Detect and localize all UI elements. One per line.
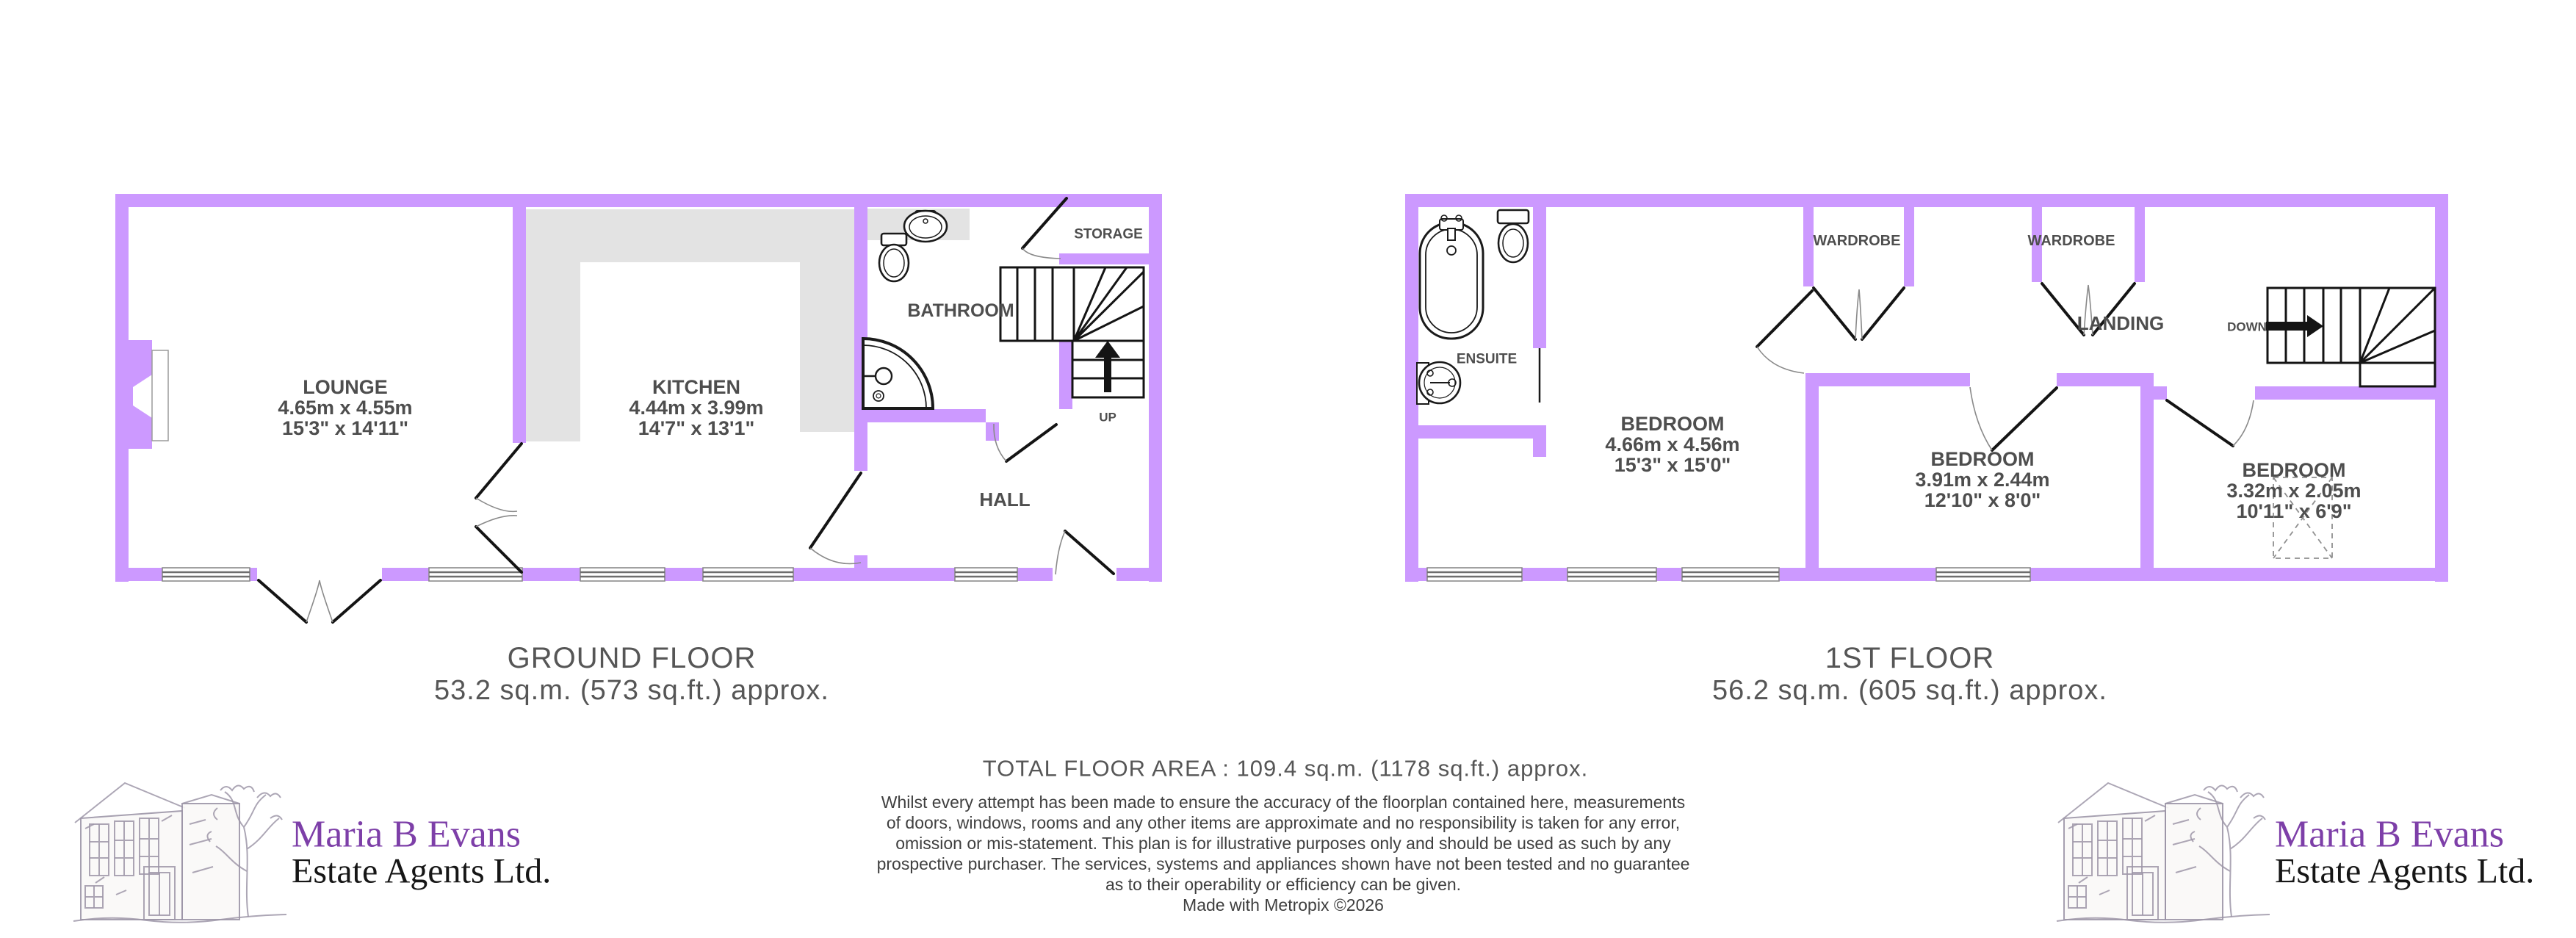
logo-right: Maria B Evans Estate Agents Ltd. xyxy=(2057,783,2534,923)
disclaimer-line: prospective purchaser. The services, sys… xyxy=(877,854,1690,873)
first-floor-title: 1ST FLOOR xyxy=(1825,642,1995,674)
shower-icon xyxy=(863,339,933,408)
toilet-icon xyxy=(879,234,909,281)
bathroom-door xyxy=(994,424,1056,461)
bedroom2-label: BEDROOM xyxy=(1931,448,2035,470)
floorplan-canvas: LOUNGE 4.65m x 4.55m 15'3" x 14'11" KITC… xyxy=(0,0,2576,938)
storage-label: STORAGE xyxy=(1074,227,1143,242)
sink-icon xyxy=(904,211,947,242)
logo-left: Maria B Evans Estate Agents Ltd. xyxy=(73,783,551,923)
lounge-dim-metric: 4.65m x 4.55m xyxy=(278,397,412,419)
window xyxy=(1682,568,1779,581)
summary-block: TOTAL FLOOR AREA : 109.4 sq.m. (1178 sq.… xyxy=(877,756,1690,915)
floor-titles: GROUND FLOOR 53.2 sq.m. (573 sq.ft.) app… xyxy=(434,642,2107,706)
disclaimer-line: Whilst every attempt has been made to en… xyxy=(881,793,1685,812)
bath-icon xyxy=(1420,215,1483,339)
wardrobe2-label: WARDROBE xyxy=(2028,233,2115,249)
toilet-icon xyxy=(1498,210,1529,262)
disclaimer-line: of doors, windows, rooms and any other i… xyxy=(887,813,1680,832)
kitchen-dim-metric: 4.44m x 3.99m xyxy=(629,397,763,419)
hall-label: HALL xyxy=(979,488,1030,511)
ensuite-label: ENSUITE xyxy=(1457,352,1517,367)
bedroom1-label: BEDROOM xyxy=(1621,413,1725,435)
lounge-label: LOUNGE xyxy=(303,376,388,398)
bedroom3-dim-metric: 3.32m x 2.05m xyxy=(2226,480,2361,502)
bedroom3-dim-imperial: 10'11" x 6'9" xyxy=(2236,500,2351,522)
window xyxy=(955,568,1017,581)
logo-name-left: Maria B Evans xyxy=(292,814,521,856)
bedroom2-dim-imperial: 12'10" x 8'0" xyxy=(1924,489,2041,511)
wardrobe1-doors xyxy=(1814,288,1904,339)
first-walls xyxy=(1405,194,2448,582)
stairs-up xyxy=(1000,267,1144,397)
front-door xyxy=(1056,531,1114,574)
first-floor-plan: BEDROOM 4.66m x 4.56m 15'3" x 15'0" BEDR… xyxy=(1405,194,2448,582)
bedroom3-door xyxy=(2167,400,2254,446)
lounge-dim-imperial: 15'3" x 14'11" xyxy=(282,417,408,439)
bedroom3-label: BEDROOM xyxy=(2243,459,2346,481)
hearth xyxy=(152,350,168,441)
bathroom-label: BATHROOM xyxy=(907,300,1014,321)
metropix-credit: Made with Metropix ©2026 xyxy=(1183,895,1384,914)
ground-floor-plan: LOUNGE 4.65m x 4.55m 15'3" x 14'11" KITC… xyxy=(115,194,1162,622)
stairs-down xyxy=(2266,288,2435,386)
stairs-down-label: DOWN xyxy=(2227,320,2267,334)
floorplan-page: LOUNGE 4.65m x 4.55m 15'3" x 14'11" KITC… xyxy=(0,0,2576,938)
window xyxy=(1427,568,1522,581)
basin-icon xyxy=(1417,362,1460,404)
bedroom1-dim-imperial: 15'3" x 15'0" xyxy=(1614,454,1731,476)
ground-floor-area: 53.2 sq.m. (573 sq.ft.) approx. xyxy=(434,675,829,706)
logo-subtitle-left: Estate Agents Ltd. xyxy=(292,852,551,891)
lounge-kitchen-double-door xyxy=(476,444,522,572)
bedroom1-door xyxy=(1757,291,1812,373)
storage-door xyxy=(1022,198,1067,259)
window xyxy=(162,568,250,581)
french-doors xyxy=(259,580,380,622)
window xyxy=(1936,568,2030,581)
window xyxy=(429,568,522,581)
kitchen-hall-door xyxy=(810,473,861,563)
kitchen-label: KITCHEN xyxy=(652,376,740,398)
stairs-up-label: UP xyxy=(1099,411,1116,425)
first-floor-area: 56.2 sq.m. (605 sq.ft.) approx. xyxy=(1712,675,2107,706)
window xyxy=(703,568,793,581)
kitchen-dim-imperial: 14'7" x 13'1" xyxy=(638,417,755,439)
window xyxy=(1567,568,1656,581)
bedroom2-door xyxy=(1970,387,2057,450)
logo-subtitle-right: Estate Agents Ltd. xyxy=(2275,852,2534,891)
disclaimer-line: as to their operability or efficiency ca… xyxy=(1105,875,1461,894)
disclaimer-line: omission or mis-statement. This plan is … xyxy=(895,834,1671,853)
ground-floor-title: GROUND FLOOR xyxy=(508,642,757,674)
bedroom1-dim-metric: 4.66m x 4.56m xyxy=(1605,433,1739,455)
first-windows xyxy=(1427,568,2030,581)
total-floor-area: TOTAL FLOOR AREA : 109.4 sq.m. (1178 sq.… xyxy=(983,756,1588,782)
logo-name-right: Maria B Evans xyxy=(2275,814,2504,856)
window xyxy=(580,568,665,581)
ground-labels: LOUNGE 4.65m x 4.55m 15'3" x 14'11" KITC… xyxy=(278,227,1142,511)
landing-label: LANDING xyxy=(2077,312,2164,334)
bedroom2-dim-metric: 3.91m x 2.44m xyxy=(1915,469,2049,491)
wardrobe1-label: WARDROBE xyxy=(1814,233,1901,249)
